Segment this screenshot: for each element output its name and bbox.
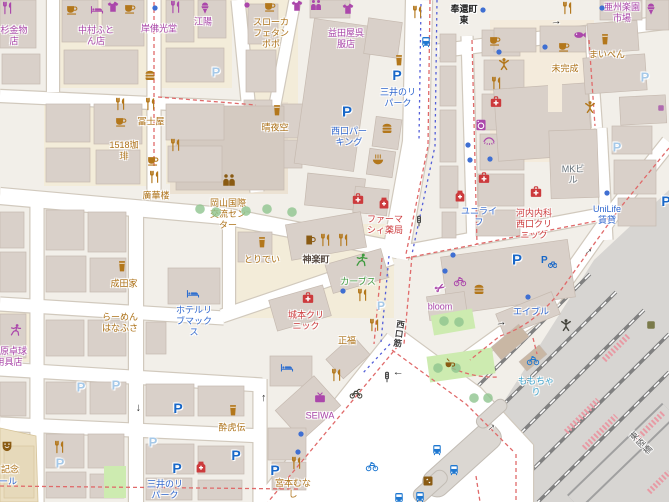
memorial-hall-inner bbox=[4, 446, 34, 498]
base-map: P bbox=[0, 0, 669, 502]
map-canvas[interactable]: P bbox=[0, 0, 669, 502]
